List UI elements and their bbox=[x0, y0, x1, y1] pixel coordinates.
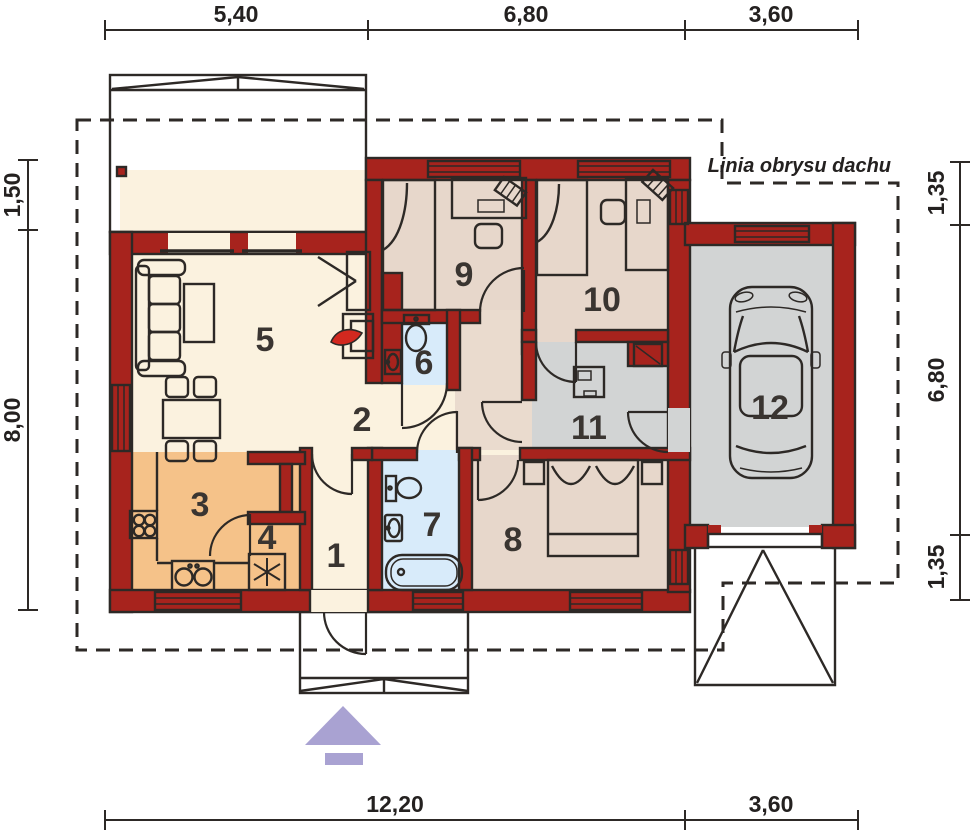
entrance-arrow-icon bbox=[305, 706, 381, 765]
garage-door-opening bbox=[668, 408, 690, 452]
dim-bottom-1: 12,20 bbox=[366, 791, 424, 817]
room-number-12-garage: 12 bbox=[751, 389, 789, 427]
room-number-2-corridor: 2 bbox=[353, 401, 372, 439]
room-number-9-bedroom: 9 bbox=[455, 256, 474, 294]
room-number-5-living: 5 bbox=[256, 321, 275, 359]
floor-bathroom-7 bbox=[380, 450, 462, 592]
driveway bbox=[695, 548, 835, 685]
room-number-3-kitchen: 3 bbox=[191, 486, 210, 524]
dim-right-1: 1,35 bbox=[923, 170, 949, 215]
dim-top-2: 6,80 bbox=[504, 1, 549, 27]
dim-right-3: 1,35 bbox=[923, 544, 949, 589]
room-number-4-pantry: 4 bbox=[258, 519, 277, 557]
dim-line-bottom bbox=[105, 810, 858, 830]
dim-top-1: 5,40 bbox=[214, 1, 259, 27]
dim-top-3: 3,60 bbox=[749, 1, 794, 27]
dim-right-2: 6,80 bbox=[923, 358, 949, 403]
terrace-post bbox=[117, 167, 126, 176]
dim-left-2: 8,00 bbox=[0, 398, 25, 443]
room-number-1-hall: 1 bbox=[327, 537, 346, 575]
floor-plan-page: Linia obrysu dachu bbox=[0, 0, 974, 832]
room-number-10-bedroom: 10 bbox=[583, 281, 621, 319]
room-number-11-utility: 11 bbox=[571, 409, 607, 447]
door-entrance bbox=[324, 612, 366, 654]
room-number-6-wc: 6 bbox=[415, 344, 434, 382]
roof-outline-label: Linia obrysu dachu bbox=[708, 155, 891, 177]
floor-plan-drawing: Linia obrysu dachu bbox=[0, 0, 974, 832]
dim-line-right bbox=[950, 162, 970, 600]
garage-gate bbox=[708, 534, 822, 547]
dim-line-left bbox=[18, 160, 38, 610]
dim-bottom-2: 3,60 bbox=[749, 791, 794, 817]
entrance-opening bbox=[310, 590, 368, 612]
room-number-8-bedroom: 8 bbox=[504, 521, 523, 559]
dim-left-1: 1,50 bbox=[0, 173, 25, 218]
room-number-7-bathroom: 7 bbox=[423, 506, 442, 544]
